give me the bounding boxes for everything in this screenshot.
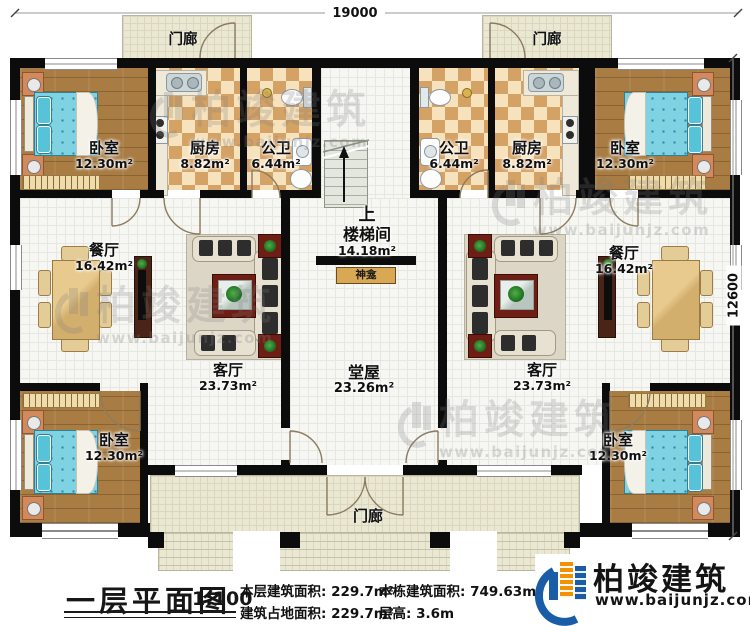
room-area: 6.44m²	[228, 157, 324, 171]
bedroom-tl-label: 卧室 12.30m²	[56, 140, 152, 172]
room-name: 卧室	[570, 432, 666, 449]
stat-footprint-area: 建筑占地面积: 229.7m²	[240, 602, 394, 622]
room-name: 卧室	[56, 140, 152, 157]
living-right-label: 客厅 23.73m²	[494, 362, 590, 394]
dimension-height: 12600	[727, 266, 742, 326]
dining-left-label: 餐厅 16.42m²	[56, 242, 152, 274]
room-area: 8.82m²	[479, 157, 575, 171]
porch-top-right-label: 门廊	[510, 28, 584, 49]
logo-tower-blue	[575, 566, 586, 600]
brand-logo: 柏竣建筑 www.baijunjz.com	[535, 554, 740, 620]
bedroom-bl-label: 卧室 12.30m²	[66, 432, 162, 464]
stat-label: 本层建筑面积:	[240, 584, 326, 600]
dimension-width: 19000	[325, 6, 385, 21]
title-underline	[64, 611, 236, 618]
room-area: 12.30m²	[570, 449, 666, 463]
room-name: 餐厅	[56, 242, 152, 259]
room-area: 12.30m²	[66, 449, 162, 463]
stat-value: 3.6m	[416, 606, 454, 622]
living-left-label: 客厅 23.73m²	[180, 362, 276, 394]
stat-label: 本栋建筑面积:	[379, 584, 465, 600]
floorplan-canvas: 神龛	[0, 0, 750, 626]
stair-marks	[323, 140, 369, 202]
room-name: 厨房	[479, 140, 575, 157]
room-area: 23.26m²	[316, 382, 412, 397]
room-name: 卧室	[66, 432, 162, 449]
stat-label: 层高:	[379, 606, 411, 622]
porch-top-left-label: 门廊	[146, 28, 220, 49]
stat-floor-area: 本层建筑面积: 229.7m²	[240, 580, 394, 600]
logo-tower-blue	[549, 572, 558, 600]
room-area: 16.42m²	[56, 259, 152, 273]
room-name: 客厅	[494, 362, 590, 379]
porch-bottom-label: 门廊	[331, 505, 405, 526]
room-name: 卧室	[577, 140, 673, 157]
brand-website: www.baijunjz.com	[595, 591, 750, 609]
stairs-up-label: 上	[317, 206, 417, 226]
room-area: 12.30m²	[56, 157, 152, 171]
stat-storey-height: 层高: 3.6m	[379, 602, 454, 622]
brand-logo-icon	[535, 556, 593, 618]
stat-label: 建筑占地面积:	[240, 606, 326, 622]
room-area: 12.30m²	[577, 157, 673, 171]
room-area: 14.18m²	[317, 244, 417, 258]
bedroom-br-label: 卧室 12.30m²	[570, 432, 666, 464]
room-name: 客厅	[180, 362, 276, 379]
door-arcs	[100, 23, 650, 515]
doors-and-marks-overlay	[0, 0, 750, 626]
room-area: 16.42m²	[576, 262, 672, 276]
room-name: 餐厅	[576, 245, 672, 262]
stair-hall-label: 上 楼梯间 14.18m²	[317, 206, 417, 258]
kitchen-right-label: 厨房 8.82m²	[479, 140, 575, 172]
room-area: 23.73m²	[180, 379, 276, 393]
main-hall-label: 堂屋 23.26m²	[316, 364, 412, 397]
room-name: 堂屋	[316, 364, 412, 382]
room-area: 23.73m²	[494, 379, 590, 393]
dining-right-label: 餐厅 16.42m²	[576, 245, 672, 277]
room-name: 楼梯间	[317, 226, 417, 244]
bedroom-tr-label: 卧室 12.30m²	[577, 140, 673, 172]
room-name: 公卫	[228, 140, 324, 157]
logo-tower-orange	[560, 562, 573, 598]
bath-left-label: 公卫 6.44m²	[228, 140, 324, 172]
